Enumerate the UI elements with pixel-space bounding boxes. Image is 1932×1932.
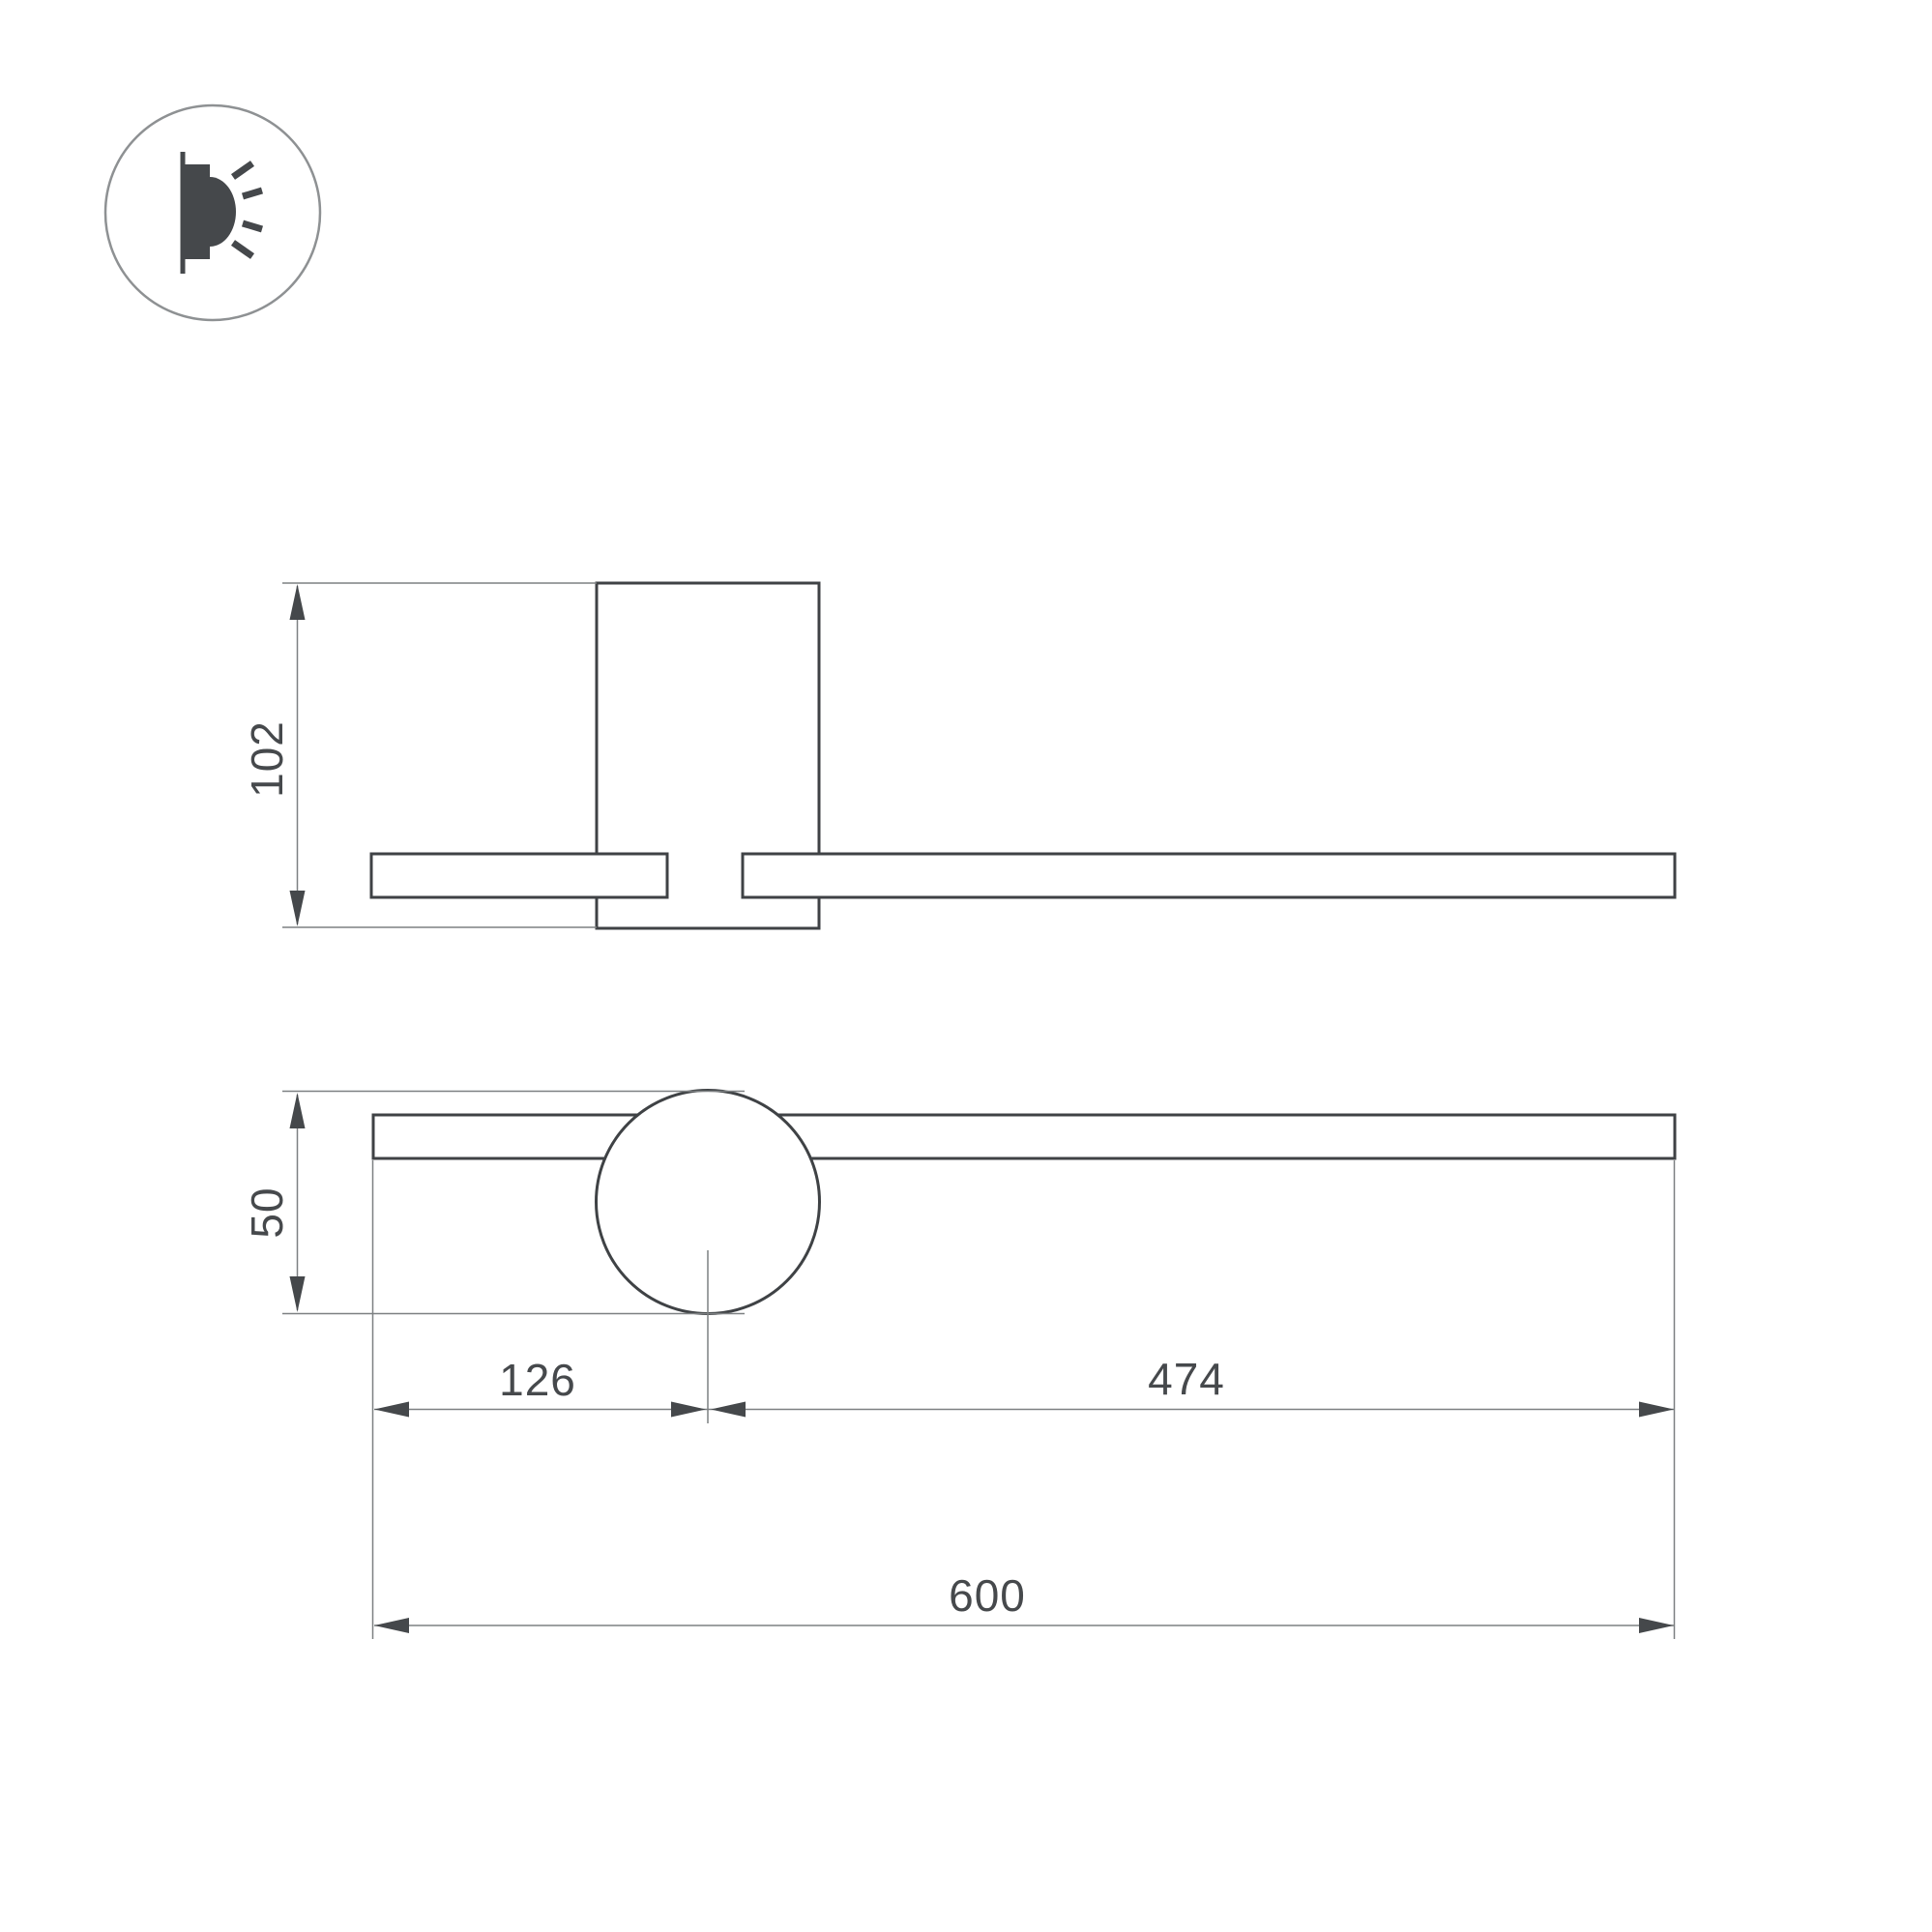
arrow-up-50 [290,1093,306,1128]
front-view: 50 126 474 600 [242,1091,1675,1640]
technical-drawing: 102 50 126 474 [0,0,1932,1932]
arrow-left-474 [711,1402,746,1418]
arrow-down-50 [290,1276,306,1312]
wall-light-emission-icon [105,105,320,320]
dimension-label-474: 474 [1148,1354,1225,1404]
arrow-left-600 [374,1618,409,1633]
side-view: 102 [242,583,1675,928]
icon-lamp-body [184,164,210,259]
arrow-up-102 [290,584,306,620]
side-view-bar-right [743,854,1675,897]
dimension-label-102: 102 [242,720,292,798]
arrow-right-126 [671,1402,706,1418]
side-view-bar-left [371,854,667,897]
dimension-label-600: 600 [949,1570,1026,1621]
arrow-down-102 [290,891,306,926]
front-view-dimension-lines [282,1092,1675,1640]
dimension-label-50: 50 [242,1186,292,1238]
arrow-left-126 [374,1402,409,1418]
dimension-label-126: 126 [499,1355,576,1405]
front-view-bar [373,1115,1675,1158]
arrow-right-600 [1639,1618,1674,1633]
arrow-right-474 [1639,1402,1674,1418]
spec-sheet-canvas: 102 50 126 474 [0,0,1932,1932]
